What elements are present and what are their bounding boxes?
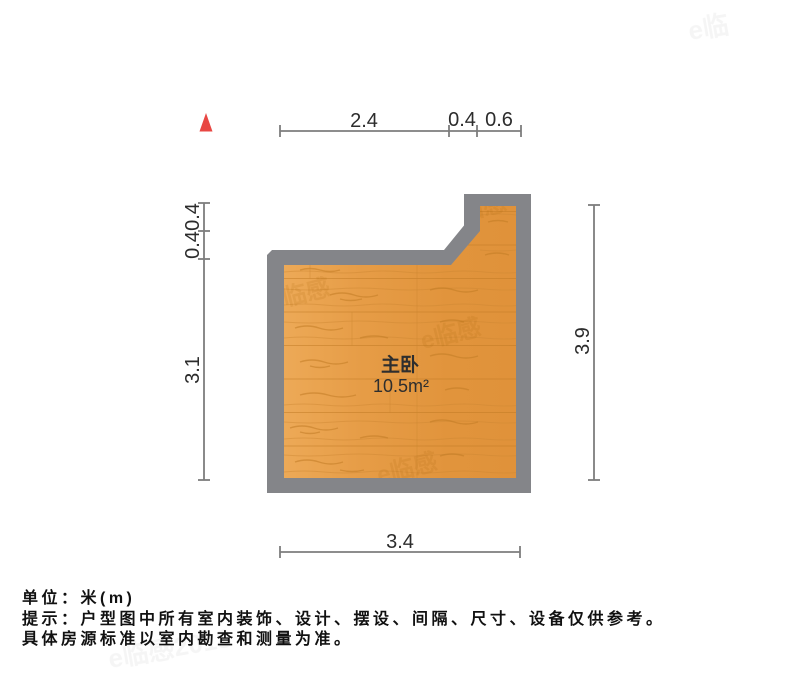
- svg-text:主卧: 主卧: [381, 354, 419, 376]
- svg-text:具体房源标准以室内勘查和测量为准。: 具体房源标准以室内勘查和测量为准。: [22, 629, 354, 648]
- svg-text:0.6: 0.6: [485, 109, 513, 131]
- svg-text:10.5m²: 10.5m²: [373, 376, 429, 396]
- svg-text:3.9: 3.9: [572, 327, 594, 355]
- svg-text:单位：米(m): 单位：米(m): [22, 588, 135, 607]
- svg-text:3.4: 3.4: [386, 531, 414, 553]
- svg-text:0.4: 0.4: [182, 231, 204, 259]
- svg-text:3.1: 3.1: [182, 356, 204, 384]
- svg-text:2.4: 2.4: [350, 110, 378, 132]
- svg-text:0.4: 0.4: [182, 203, 204, 231]
- svg-text:e临: e临: [686, 9, 731, 46]
- svg-text:提示：户型图中所有室内装饰、设计、摆设、间隔、尺寸、设备仅供: 提示：户型图中所有室内装饰、设计、摆设、间隔、尺寸、设备仅供参考。: [22, 609, 666, 628]
- svg-text:0.4: 0.4: [448, 109, 476, 131]
